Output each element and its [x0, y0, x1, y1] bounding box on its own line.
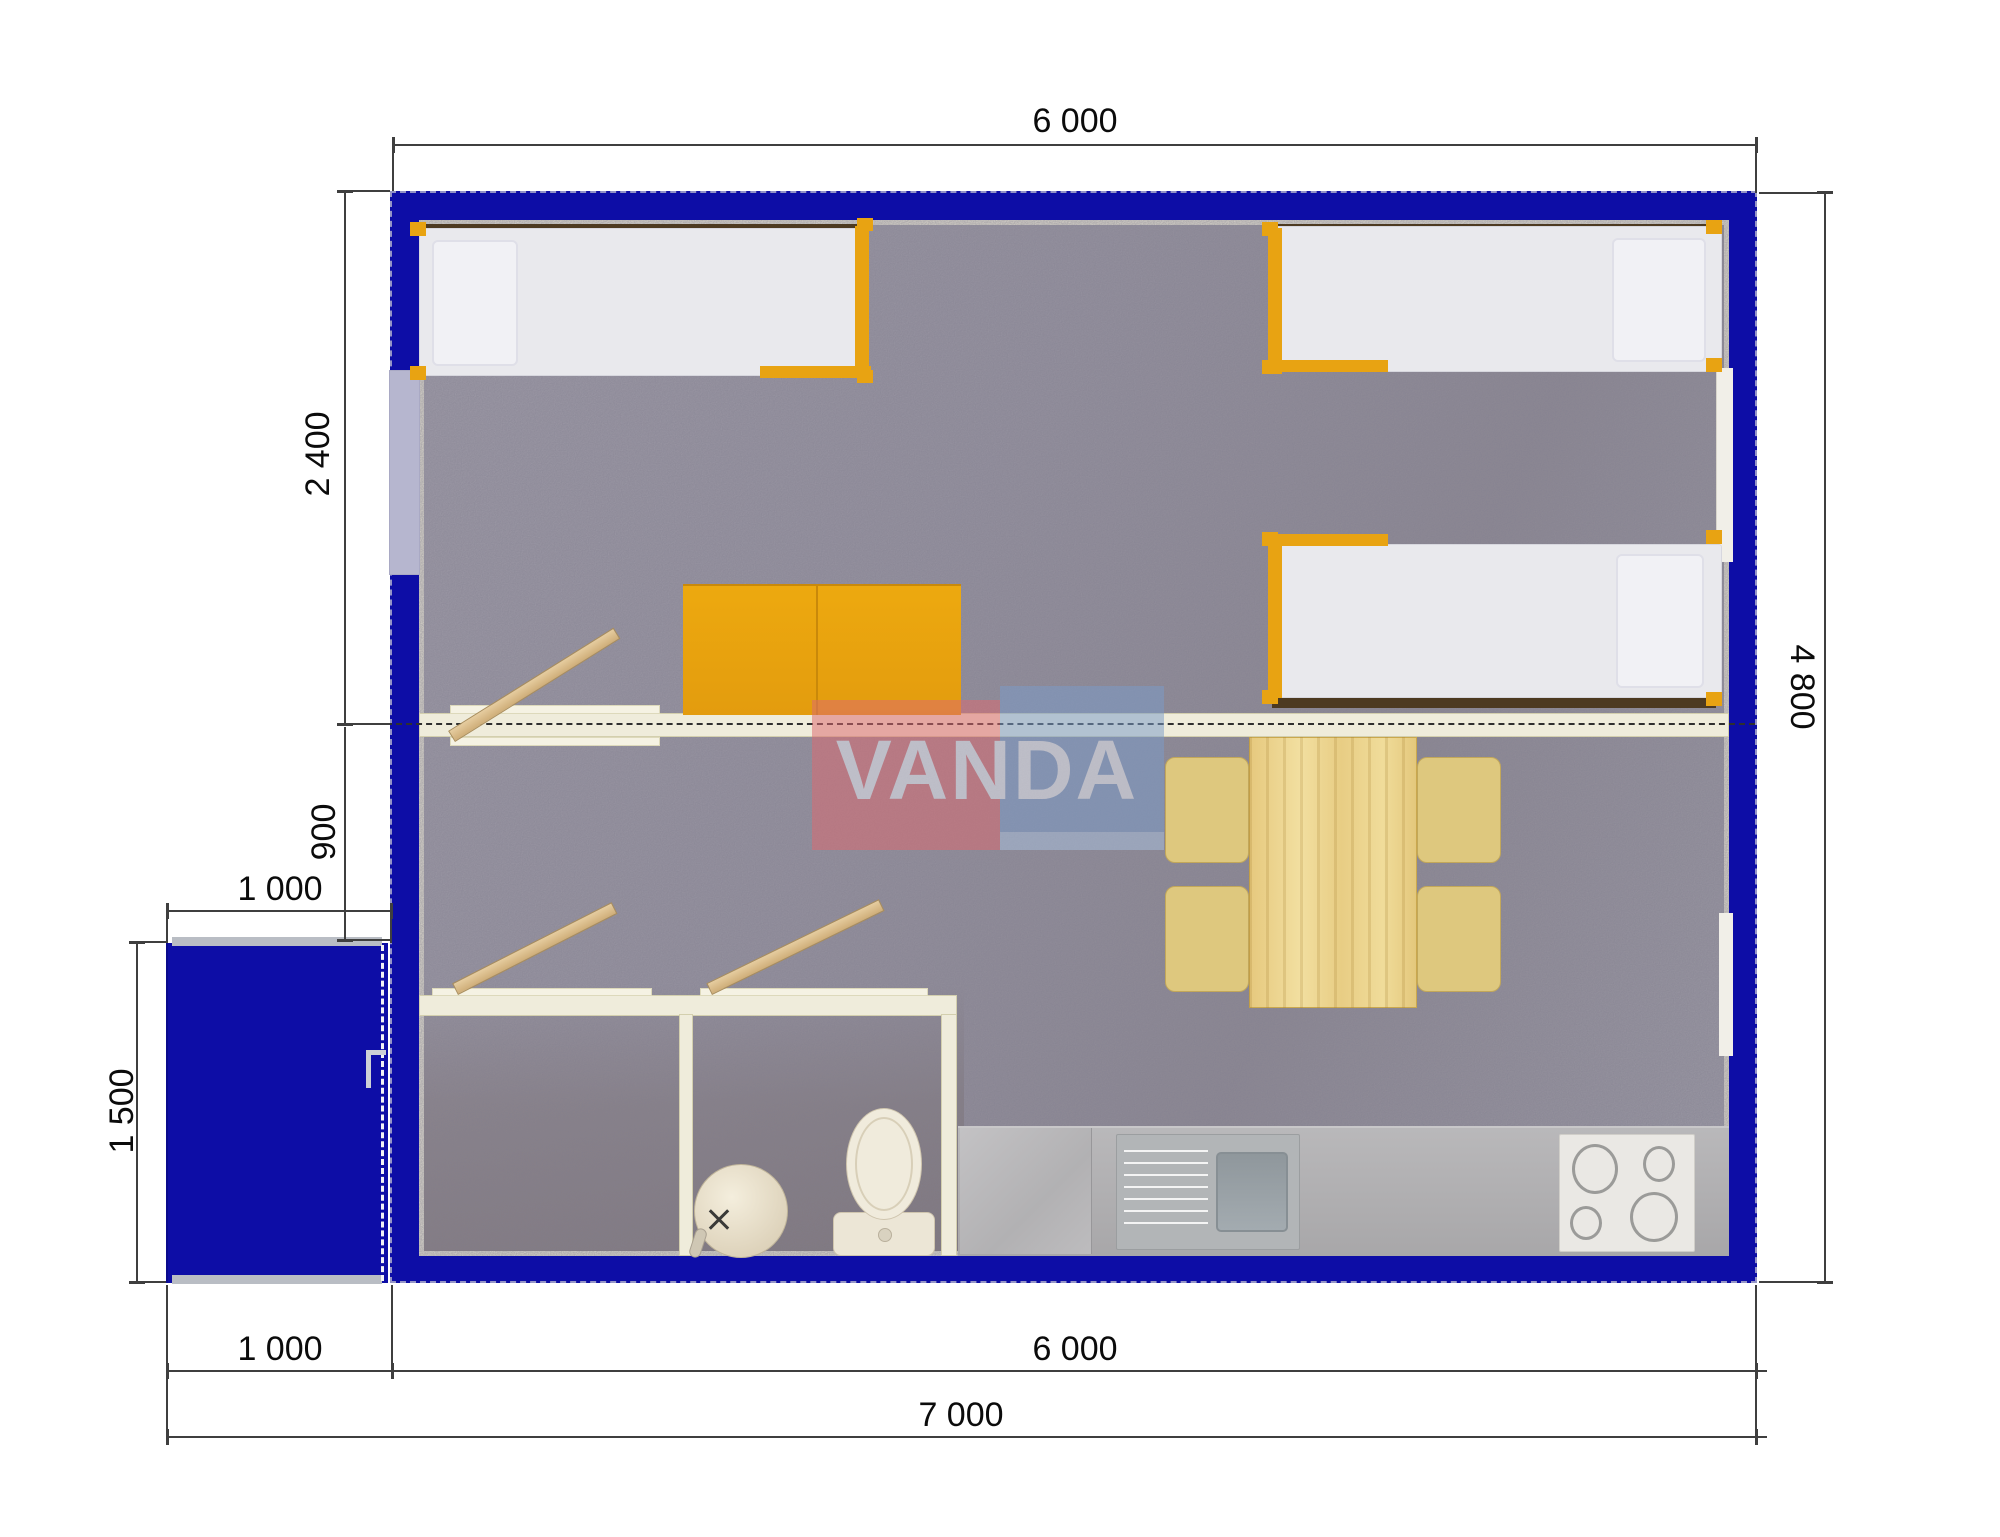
dim-porch-width-label: 1 000 — [200, 872, 360, 906]
toilet-bowl — [846, 1108, 922, 1220]
bathroom-door-casing-right — [700, 988, 928, 996]
porch-entrance-dashed-door-line — [381, 945, 384, 1281]
vanda-watermark: VANDA — [810, 684, 1164, 856]
right-wall-window-lower — [1719, 913, 1733, 1056]
dim-extension — [1759, 1281, 1825, 1283]
dim-tick — [1755, 137, 1758, 153]
dim-tick — [337, 723, 353, 726]
dim-tick — [1755, 1363, 1758, 1379]
hob-burner-large-bottom-right — [1630, 1192, 1678, 1242]
dim-extension — [1755, 1285, 1757, 1370]
dim-top-width-label: 6 000 — [995, 104, 1155, 138]
dim-right-height-label: 4 800 — [1785, 607, 1819, 767]
dim-tick — [390, 903, 393, 919]
dim-porch-width-line — [167, 910, 393, 912]
bed-3-corner-post — [1262, 690, 1278, 704]
bed-3-frame-left-rail — [1268, 546, 1282, 698]
bed-1-corner-post — [410, 366, 426, 380]
bed-1-pillow — [432, 240, 518, 366]
watermark-text: VANDA — [820, 728, 1154, 812]
bed-1-corner-post — [410, 222, 426, 236]
left-wall-window — [389, 370, 420, 575]
bed-1-corner-post — [857, 218, 873, 231]
dim-tick — [337, 939, 353, 942]
entrance-door-handle — [366, 1050, 371, 1088]
hob-burner-small-top-right — [1643, 1146, 1675, 1182]
bed-3-frame-head-rail — [1268, 534, 1388, 546]
dim-extension — [166, 1285, 168, 1370]
dim-bottom-total-width-label: 7 000 — [881, 1398, 1041, 1432]
dim-extension — [392, 150, 394, 191]
dining-table-wood-grain — [1249, 737, 1417, 1008]
kitchen-appliance-panel — [960, 1128, 1092, 1254]
bed-2-corner-post — [1706, 220, 1722, 234]
bed-1-frame-right-rail — [855, 226, 869, 378]
entry-porch — [166, 943, 388, 1283]
dining-chair — [1417, 757, 1501, 863]
porch-bottom-sill — [172, 1275, 382, 1284]
dim-bottom-total-line — [167, 1436, 1767, 1438]
dim-extension — [1755, 1372, 1757, 1436]
dim-tick — [166, 1429, 169, 1445]
dim-bedroom-depth-label: 2 400 — [301, 374, 335, 534]
dim-extension — [166, 1372, 168, 1436]
dim-tick — [166, 903, 169, 919]
bed-2-frame-left-rail — [1268, 228, 1282, 374]
toilet-flush-button — [878, 1228, 892, 1242]
dim-bottom-row1-line — [167, 1370, 1767, 1372]
bathroom-middle-wall — [679, 1014, 693, 1256]
bed-2-frame-foot-rail — [1268, 360, 1388, 372]
hob-burner-small-bottom-left — [1570, 1206, 1602, 1240]
dim-tick — [392, 137, 395, 153]
bathroom-right-wall — [941, 1014, 957, 1256]
dim-tick — [1817, 1281, 1833, 1284]
bed-3-corner-post — [1706, 530, 1722, 544]
dim-tick — [1817, 191, 1833, 194]
bed-2-pillow — [1612, 238, 1706, 362]
dim-bottom-porch-width-label: 1 000 — [200, 1332, 360, 1366]
sink-basin — [1216, 1152, 1288, 1232]
hob-burner-large-top-left — [1572, 1144, 1618, 1194]
dim-bottom-body-width-label: 6 000 — [995, 1332, 1155, 1366]
dim-top-width-line — [393, 144, 1757, 146]
dim-tick — [129, 941, 145, 944]
partition-door-casing-bottom — [450, 737, 660, 746]
bathroom-front-wall — [419, 995, 957, 1016]
dim-hall-depth-line — [344, 727, 346, 941]
dim-tick — [391, 1363, 394, 1379]
dim-porch-depth-label: 1 500 — [105, 1031, 139, 1191]
bed-3-pillow — [1616, 554, 1704, 688]
dim-extension — [1755, 150, 1757, 193]
watermark-blue-block-base — [1000, 832, 1164, 850]
dim-right-height-line — [1824, 192, 1826, 1283]
dim-tick — [129, 1281, 145, 1284]
dim-extension — [1759, 192, 1825, 194]
dining-chair — [1417, 886, 1501, 992]
dim-extension — [391, 1285, 393, 1370]
bed-2-corner-post — [1262, 360, 1278, 374]
dim-tick — [1755, 1429, 1758, 1445]
bed-3-corner-post — [1262, 532, 1278, 546]
bed-2-corner-post — [1706, 358, 1722, 372]
sink-drainboard-ridges — [1124, 1150, 1208, 1234]
bed-3-corner-post — [1706, 692, 1722, 706]
dining-chair — [1165, 757, 1249, 863]
dim-tick — [166, 1363, 169, 1379]
floor-plan-canvas: VANDA 6 000 4 800 2 400 900 1 000 1 500 … — [0, 0, 2000, 1537]
bed-1-corner-post — [857, 370, 873, 383]
dim-tick — [337, 190, 353, 193]
toilet-seat-ring — [855, 1117, 913, 1211]
dining-chair — [1165, 886, 1249, 992]
dim-bedroom-depth-line — [344, 191, 346, 725]
bed-2-corner-post — [1262, 222, 1278, 236]
bed-1-frame-foot-rail — [760, 366, 871, 378]
